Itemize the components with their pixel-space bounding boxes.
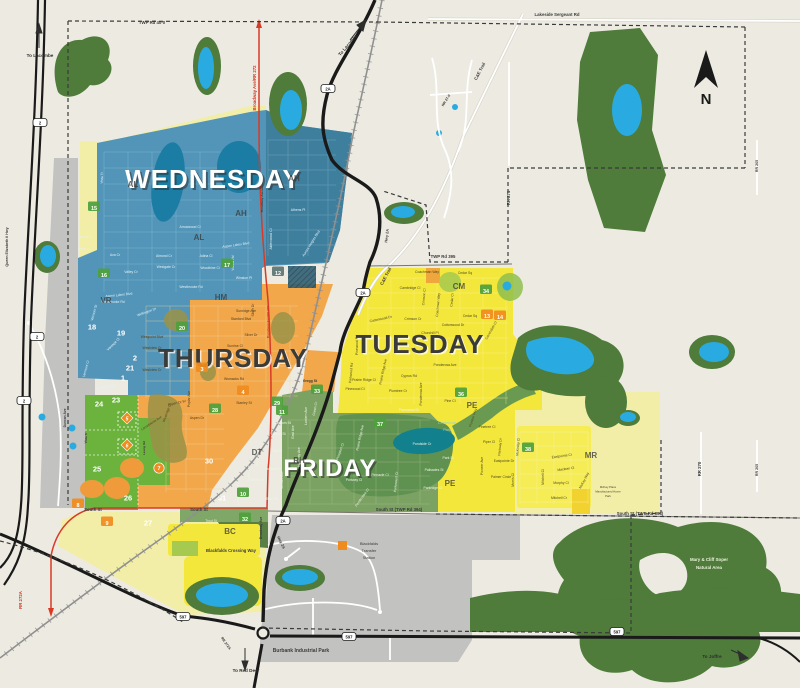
zone-badge-26: 26	[124, 494, 132, 503]
street-label: East Ave	[291, 425, 295, 438]
street-label: Lantern Ave	[304, 407, 308, 425]
area-code-hm-5: HM	[215, 293, 228, 302]
street-label: Poplar Ave	[187, 391, 191, 407]
street-label: Pinewood Cl	[345, 387, 364, 391]
street-label: Waghorn St	[273, 421, 291, 425]
street-label: Aldenwood Cl	[269, 228, 273, 249]
poi-label-burbank-industrial-park: Burbank Industrial Park	[273, 648, 330, 654]
street-label: Arlen Cl	[78, 247, 90, 251]
road-label: Broadway Ave	[259, 517, 263, 540]
zone-badge-25: 25	[93, 465, 101, 474]
area-code-ah-1: AH	[235, 209, 247, 218]
street-label: Winks St	[250, 478, 263, 482]
road-label: Vista Tr	[84, 432, 88, 444]
highway-shield-597: 597	[614, 629, 622, 634]
zone-badge-10: 10	[240, 492, 246, 498]
street-label: Cyprus Rd	[401, 374, 417, 378]
area-code-pe-9: PE	[467, 401, 478, 410]
area-code-mr-11: MR	[585, 451, 598, 460]
street-label: Plumtree Cr	[389, 389, 408, 393]
poi-label-centennial-park: Park	[443, 428, 452, 432]
north-label: N	[701, 91, 712, 108]
direction-to-lacombe: To Lacombe	[27, 53, 54, 58]
street-label: Womacks Rd	[224, 377, 244, 381]
highway-shield-2a: 2A	[280, 518, 285, 523]
street-label: Athens Pl	[291, 208, 306, 212]
street-label: Cambridge Cl	[400, 286, 421, 290]
zone-badge-34: 34	[483, 289, 490, 295]
zone-badge-38: 38	[525, 447, 531, 453]
area-code-al-3: AL	[194, 233, 205, 242]
road-label: RR 270	[697, 461, 702, 476]
street-label: Prairie Ridge Cl	[352, 378, 376, 382]
street-label: Eastpointe Dr	[494, 459, 515, 463]
map-canvas: N TWP Rd 40-0Lakeside Sergeant RdTWP Rd …	[0, 0, 800, 688]
street-label: Pioneer Ave	[480, 457, 484, 475]
zone-day-label-tuesday: TUESDAY	[356, 329, 485, 359]
road-label: South St	[190, 507, 208, 512]
street-label: Lorne Ave	[247, 465, 251, 480]
area-code-bc-12: BC	[224, 527, 236, 536]
street-label: Willson St	[270, 432, 285, 436]
zone-badge-7: 7	[157, 466, 160, 472]
zone-badge-18: 18	[88, 323, 96, 332]
road-label: RR 265	[755, 160, 759, 172]
street-label: Trout St	[205, 519, 216, 523]
area-code-cm-6: CM	[453, 282, 466, 291]
poi-label-mary-cliff-soper-natural-area: Natural Area	[696, 565, 723, 570]
zone-badge-20: 20	[179, 326, 185, 332]
area-code-vr-4: VR	[100, 296, 111, 305]
street-label: Mitchell Cr	[551, 496, 568, 500]
area-code-dt-7: DT	[252, 448, 263, 457]
highway-shield-2a: 2A	[360, 290, 365, 295]
road-label: RR 271	[506, 190, 511, 205]
street-label: Shull St	[266, 497, 278, 501]
zone-badge-30: 30	[205, 457, 213, 466]
highway-shield-597: 597	[180, 614, 188, 619]
road-label: Broadway Ave/RR 272	[252, 65, 257, 111]
zone-badge-12: 12	[275, 271, 281, 277]
road-label: Queen Elizabeth II Hwy	[5, 227, 9, 266]
street-label: Pondside Cr	[413, 442, 433, 446]
road-label: Leung Rd	[142, 441, 146, 455]
zone-badge-14: 14	[497, 315, 504, 321]
street-label: Westpoint Blvd	[141, 335, 164, 339]
future-development-hatch	[288, 266, 316, 288]
street-label: Palisades St	[425, 468, 444, 472]
road-label: Duncan Ave	[63, 408, 67, 427]
poi-label-mckay-place: Manufactured Home	[595, 490, 621, 494]
street-label: Vista Tr	[100, 171, 104, 183]
street-label: Adina Cl	[200, 254, 213, 258]
zone-badge-28: 28	[212, 408, 218, 414]
zone-badge-5: 5	[126, 417, 129, 423]
poi-label-mckay-place: McKay Place	[600, 485, 617, 489]
zone-badge-3: 3	[200, 367, 203, 373]
street-label: Arrowwood Cl	[179, 225, 200, 229]
zone-day-label-thursday: THURSDAY	[158, 343, 308, 373]
zone-badge-8: 8	[76, 503, 79, 509]
zone-badge-21: 21	[126, 364, 134, 373]
road-label: RR 265	[755, 464, 759, 476]
road-label: Gregg St	[303, 379, 318, 383]
road-label: Broadway Ave/RR 272	[266, 306, 270, 339]
poi-label-transfer-station: Blackfalds	[360, 541, 378, 546]
street-label: Murphy Cl	[553, 481, 569, 485]
roundabout	[258, 628, 269, 639]
highway-shield-2a: 2A	[325, 86, 330, 91]
poi-label-mary-cliff-soper-natural-area: Mary & Cliff Soper	[690, 557, 728, 562]
street-label: Westgate Cr	[157, 265, 177, 269]
street-label: Valley Cr	[124, 270, 138, 274]
street-label: Crimson Cr	[404, 317, 422, 321]
area-code-al-2: AL	[128, 180, 139, 189]
zone-badge-19: 19	[117, 329, 125, 338]
zone-badge-2: 2	[133, 354, 137, 363]
zone-badge-36: 36	[458, 392, 464, 398]
direction-to-joffre: To Joffre	[702, 654, 722, 659]
zone-badge-32: 32	[242, 517, 248, 523]
street-label: Pinetree Cl	[479, 425, 496, 429]
street-label: Aspen Dr	[190, 416, 205, 420]
street-label: Ponderosa Ave	[434, 363, 457, 367]
street-label: Woodbine Cl	[200, 266, 220, 270]
zone-badge-16: 16	[101, 273, 107, 279]
zone-badge-13: 13	[484, 314, 490, 320]
zone-badge-15: 15	[91, 206, 97, 212]
street-label: Piper Cl	[483, 440, 495, 444]
street-label: Cottonwood Dr	[442, 323, 465, 327]
street-label: Winston Pl	[236, 276, 252, 280]
road-label: TWP Rd 40-0	[139, 20, 166, 25]
road-label: TWP Rd 395	[431, 254, 456, 259]
road-label: South St (TWP Rd 394)	[617, 511, 664, 516]
road-label: South St	[84, 507, 102, 512]
road-label: Blackfalds Crossing Way	[206, 548, 257, 553]
street-label: Panorama Dr	[399, 408, 420, 412]
street-label: Park St	[442, 456, 453, 460]
street-label: Stanley St	[236, 401, 252, 405]
zone-badge-11: 11	[279, 410, 285, 416]
area-code-rh-8: RH	[293, 456, 305, 465]
street-label: Cedar Sq	[458, 271, 472, 275]
zone-badge-37: 37	[377, 422, 383, 428]
transfer-station-icon	[338, 541, 347, 550]
street-label: Indiana St	[265, 467, 280, 471]
street-label: Park St	[270, 449, 281, 453]
area-code-ah-0: AH	[288, 174, 300, 183]
zone-badge-9: 9	[105, 521, 108, 527]
street-label: Ava Cr	[110, 253, 121, 257]
direction-to-red-deer: To Red Deer	[233, 668, 260, 673]
poi-label-transfer-station: Station	[363, 555, 375, 560]
street-label: Silver Dr	[245, 333, 259, 337]
area-code-pe-10: PE	[445, 479, 456, 488]
zone-badge-31: 31	[218, 494, 226, 503]
street-label: Silver Dr	[251, 303, 255, 317]
street-label: Almond Cr	[156, 254, 173, 258]
poi-label-centennial-park: Centennial	[438, 421, 456, 425]
street-label: Pine Cl	[445, 399, 456, 403]
street-label: Ponderosa Ave	[419, 382, 423, 405]
street-label: Cedar Sq	[463, 314, 477, 318]
poi-label-transfer-station: Transfer	[362, 548, 377, 553]
zone-badge-24: 24	[95, 400, 104, 409]
blackfalds-collection-zone-map: N TWP Rd 40-0Lakeside Sergeant RdTWP Rd …	[0, 0, 800, 688]
zone-badge-27: 27	[144, 519, 152, 528]
zone-badge-6: 6	[126, 444, 129, 450]
street-label: Palmer Circle	[491, 475, 511, 479]
street-label: Stanford Blvd	[231, 317, 251, 321]
street-label: Coachman Way	[415, 270, 439, 274]
road-label: RR 272A	[18, 591, 23, 609]
street-label: Westbrooke Rd	[179, 285, 202, 289]
street-label: Mitchell Cl	[541, 469, 545, 485]
zone-badge-1: 1	[121, 374, 125, 383]
road-label: Lakeside Sergeant Rd	[535, 12, 580, 17]
street-label: Anna Cl	[80, 235, 92, 239]
street-label: Parkridge Cr	[423, 486, 443, 490]
zone-day-label-wednesday: WEDNESDAY	[125, 164, 301, 194]
street-label: Morris Cl	[511, 473, 515, 487]
zone-badge-23: 23	[112, 396, 120, 405]
poi-label-mckay-place: Park	[605, 494, 611, 498]
zone-badge-17: 17	[224, 263, 230, 269]
zone-badge-33: 33	[314, 389, 320, 395]
road-label: South St (TWP Rd 394)	[376, 507, 423, 512]
highway-shield-597: 597	[346, 634, 354, 639]
